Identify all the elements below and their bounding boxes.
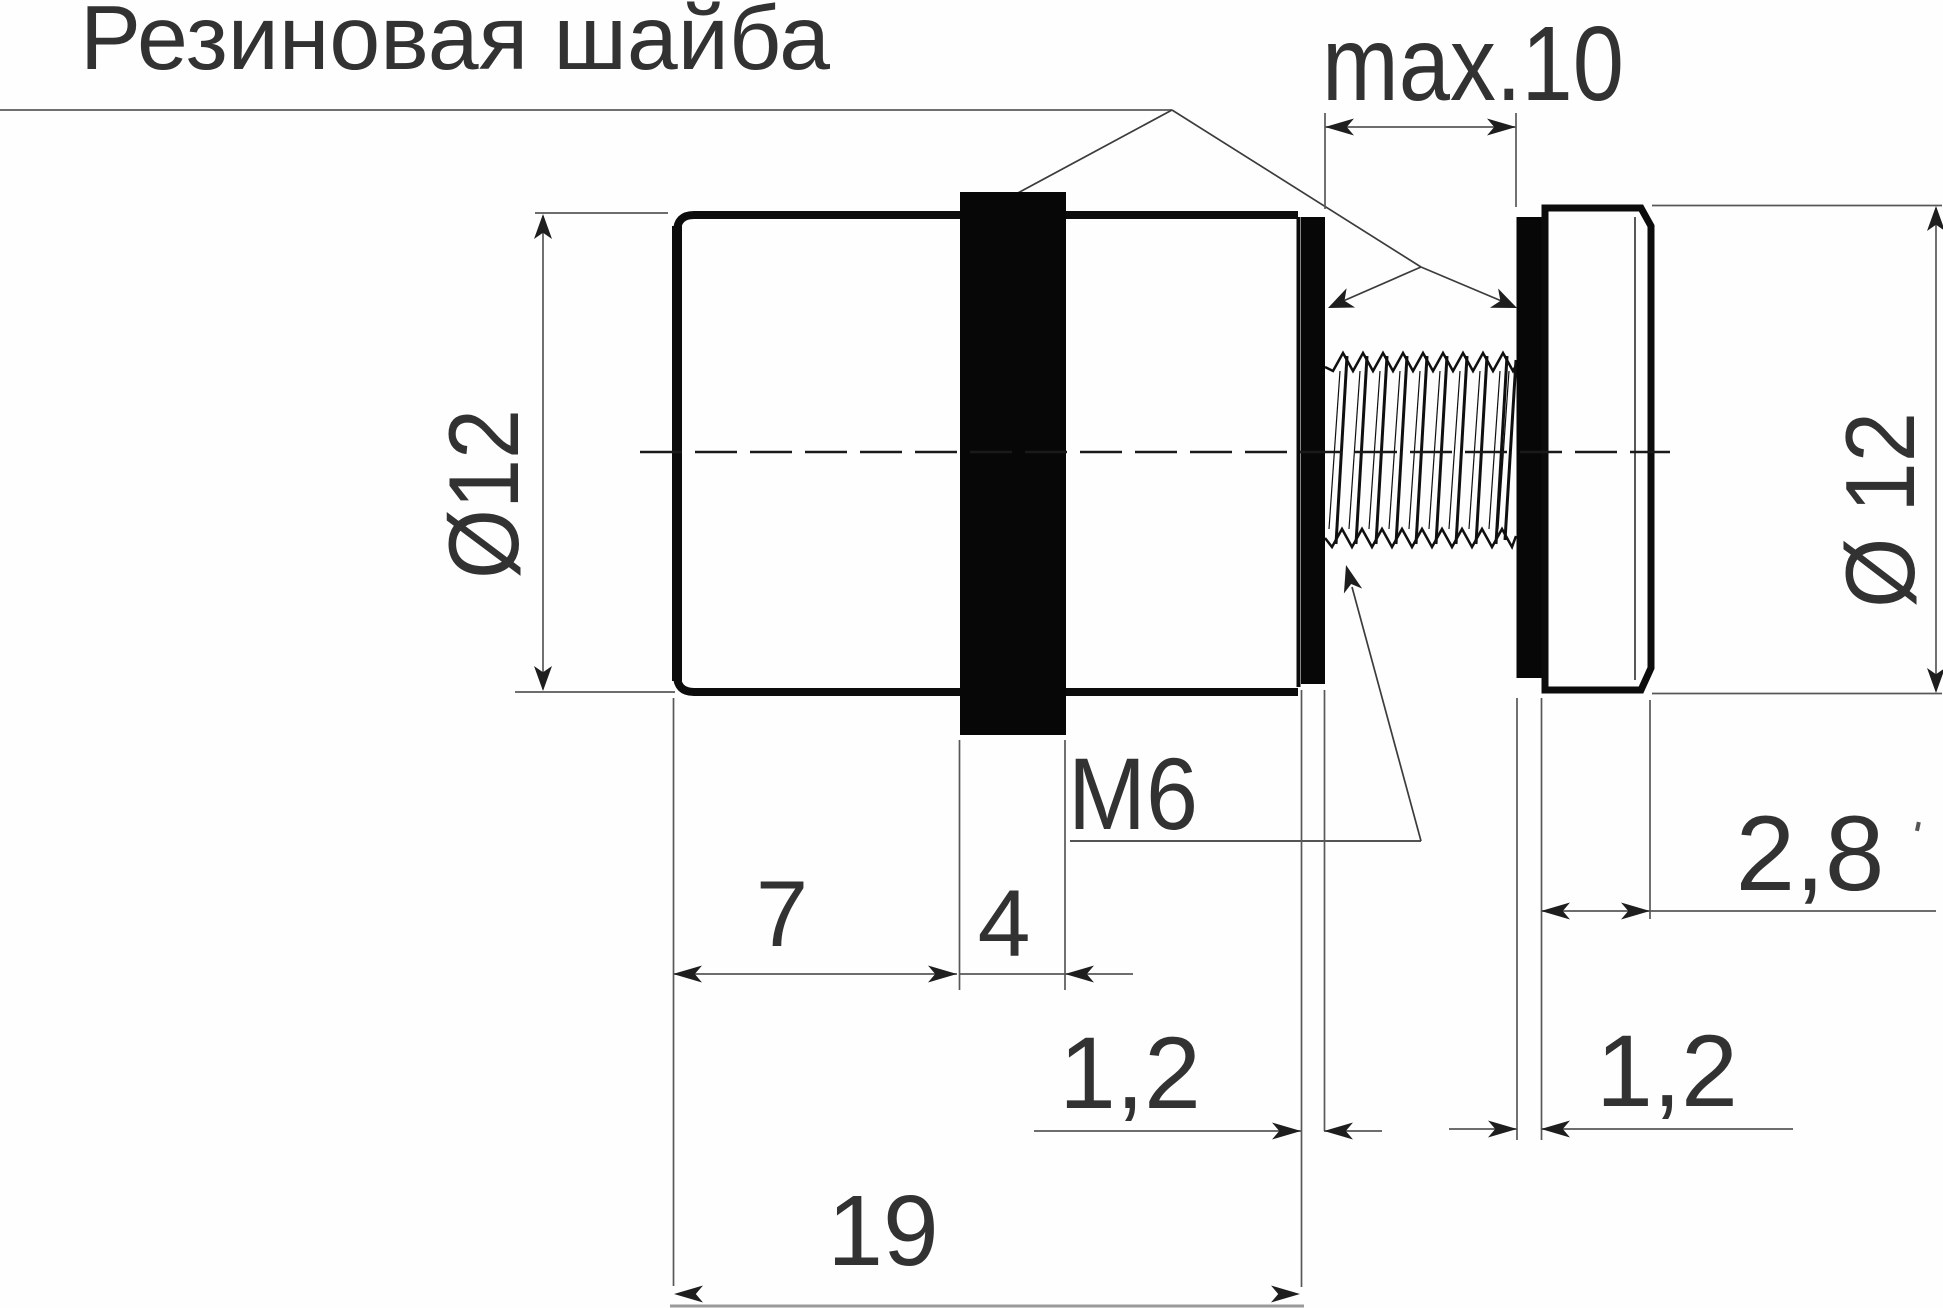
svg-text:М6: М6: [1068, 737, 1198, 851]
svg-text:Резиновая шайба: Резиновая шайба: [80, 0, 830, 89]
svg-text:19: 19: [827, 1175, 938, 1287]
svg-text:2,8: 2,8: [1736, 793, 1885, 913]
svg-text:7: 7: [756, 861, 808, 966]
svg-text:4: 4: [978, 871, 1031, 977]
svg-text:1,2: 1,2: [1059, 1016, 1201, 1130]
svg-text:1,2: 1,2: [1596, 1014, 1738, 1128]
svg-text:Ø12: Ø12: [428, 409, 539, 579]
svg-text:max.10: max.10: [1322, 5, 1624, 123]
svg-text:Ø 12: Ø 12: [1825, 412, 1935, 608]
